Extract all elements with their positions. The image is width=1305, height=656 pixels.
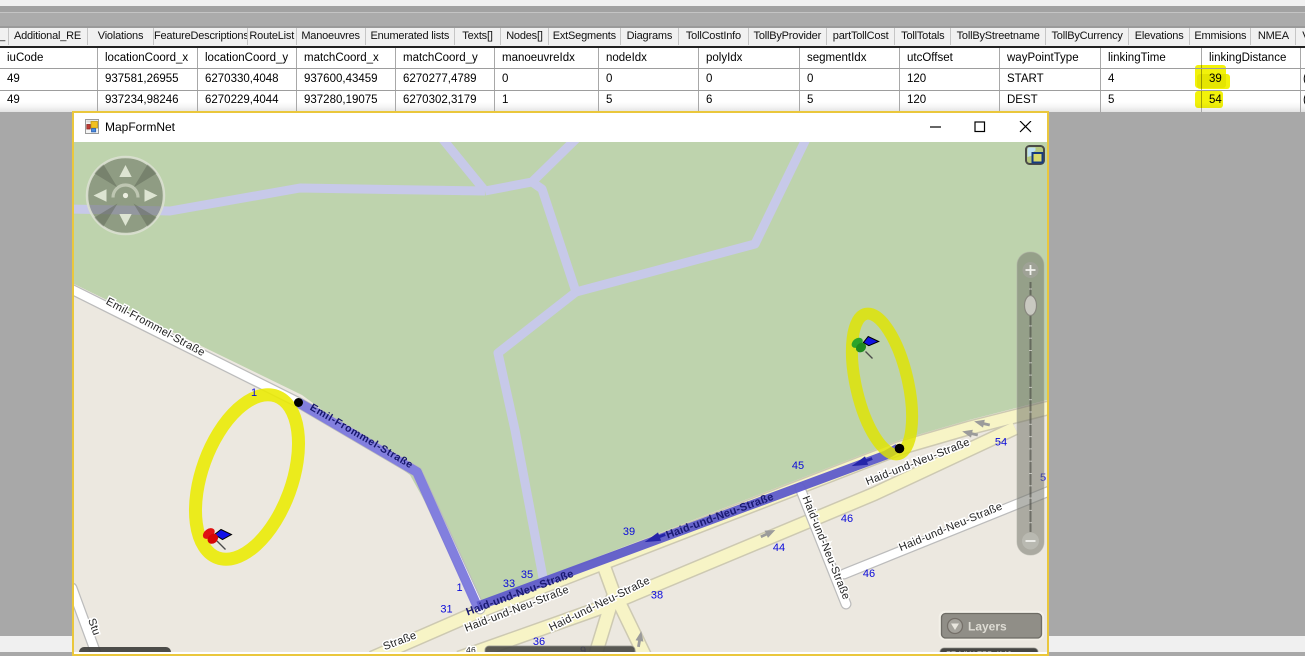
svg-text:54: 54 [995,437,1007,449]
svg-text:33: 33 [503,578,515,590]
svg-text:44: 44 [773,542,785,554]
svg-text:46: 46 [863,568,875,580]
svg-text:31: 31 [440,604,452,616]
svg-text:1: 1 [456,582,462,594]
svg-text:46: 46 [466,645,476,652]
svg-text:46: 46 [841,513,853,525]
svg-text:45: 45 [792,460,804,472]
svg-text:39: 39 [623,526,635,538]
svg-text:38: 38 [651,590,663,602]
svg-text:1: 1 [251,387,257,399]
svg-text:Layers: Layers [968,620,1007,634]
svg-text:35: 35 [521,569,533,581]
